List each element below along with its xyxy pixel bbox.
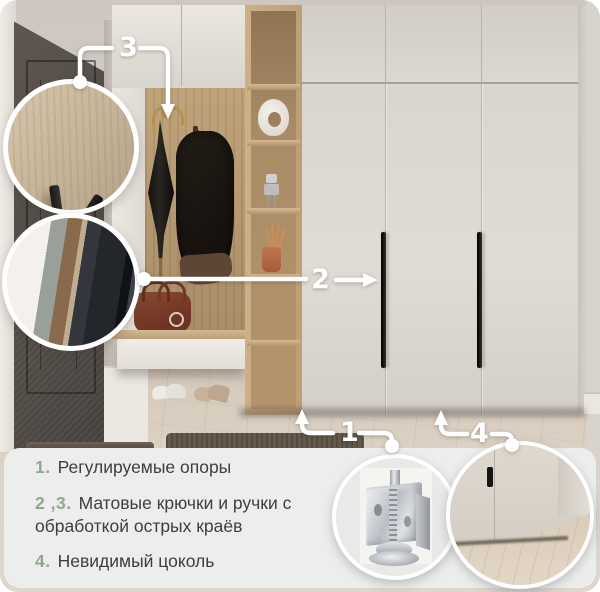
plinth-detail-photo <box>446 441 594 589</box>
bag-ring <box>169 312 184 327</box>
feature-number: 4. <box>35 551 51 571</box>
feature-text: Невидимый цоколь <box>58 551 215 571</box>
feature-item-plinth: 4.Невидимый цоколь <box>35 550 365 573</box>
photo-scene: 1.Регулируемые опоры 2 ,3.Матовые крючки… <box>0 0 600 592</box>
lower-wall-trim <box>104 366 148 452</box>
handle-edge-detail-photo <box>2 213 140 351</box>
shelf-board <box>247 208 300 214</box>
callout-number-1: 1 <box>340 419 359 446</box>
cabinet-seam <box>181 5 182 86</box>
right-wall <box>587 0 600 455</box>
wardrobe-upper-row <box>302 5 578 84</box>
wardrobe-side-panel <box>578 5 587 411</box>
plinth-shadow <box>240 408 585 417</box>
robot-figurine <box>264 184 279 195</box>
reed-diffuser <box>262 247 281 272</box>
foot-threaded-rod <box>389 486 397 544</box>
bag-handle <box>158 281 186 302</box>
feature-number: 2 ,3. <box>35 493 72 513</box>
wardrobe-handle <box>381 232 386 368</box>
baseboard <box>584 392 600 414</box>
wardrobe-seam-highlight <box>482 84 483 414</box>
foot-hole <box>374 504 382 516</box>
callout-number-3: 3 <box>119 34 138 61</box>
plinth-door-seam <box>494 445 495 541</box>
robot-figurine <box>267 195 276 207</box>
callout-number-4: 4 <box>470 420 489 447</box>
plinth-wall-corner <box>558 445 590 515</box>
feature-number: 1. <box>35 457 51 477</box>
shelf-board <box>247 84 300 90</box>
feature-item-supports: 1.Регулируемые опоры <box>35 456 365 479</box>
feature-item-hooks-handles: 2 ,3.Матовые крючки и ручки с обработкой… <box>35 492 365 538</box>
vase-hole <box>268 112 281 127</box>
shelf-board <box>247 140 300 146</box>
handle-edge-strips <box>2 213 140 351</box>
feature-text: Матовые крючки и ручки с обработкой остр… <box>35 493 291 536</box>
wardrobe-doors <box>302 84 578 414</box>
foot-hole <box>404 516 411 527</box>
shelf-board <box>247 274 300 280</box>
infographic-card: 1.Регулируемые опоры 2 ,3.Матовые крючки… <box>0 0 600 592</box>
wardrobe-handle <box>477 232 482 368</box>
foot-disc <box>369 551 419 566</box>
feature-list: 1.Регулируемые опоры 2 ,3.Матовые крючки… <box>35 456 365 586</box>
bench-drawer <box>117 339 245 369</box>
robot-figurine <box>266 174 277 183</box>
foot-flap <box>416 494 430 551</box>
shelf-board <box>247 340 300 346</box>
wardrobe-seam-highlight <box>386 84 387 414</box>
plinth-door-handle <box>487 467 493 487</box>
umbrella-handle <box>152 106 184 125</box>
callout-number-2: 2 <box>311 266 330 293</box>
hook-detail-photo <box>3 79 139 215</box>
adjustable-foot-detail-photo <box>332 454 458 580</box>
feature-text: Регулируемые опоры <box>58 457 232 477</box>
hook-icon <box>49 185 69 215</box>
